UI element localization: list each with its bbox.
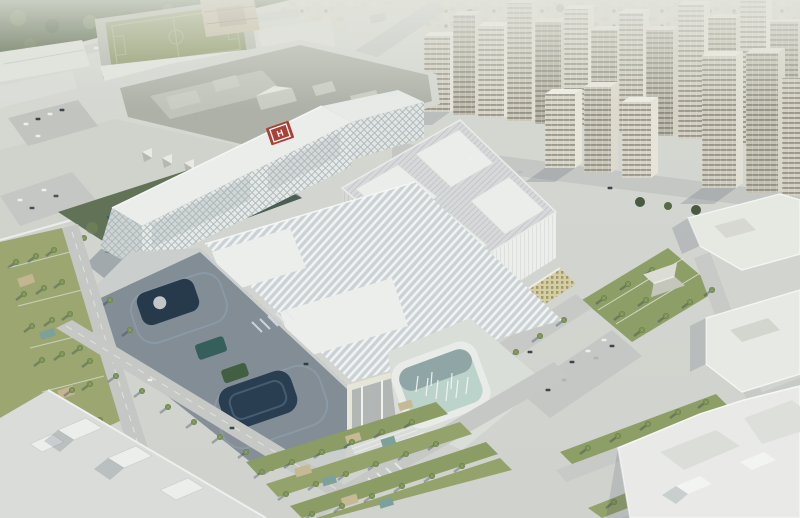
scene-svg: H [0, 0, 800, 518]
color-cast [0, 0, 800, 518]
aerial-render: H [0, 0, 800, 518]
